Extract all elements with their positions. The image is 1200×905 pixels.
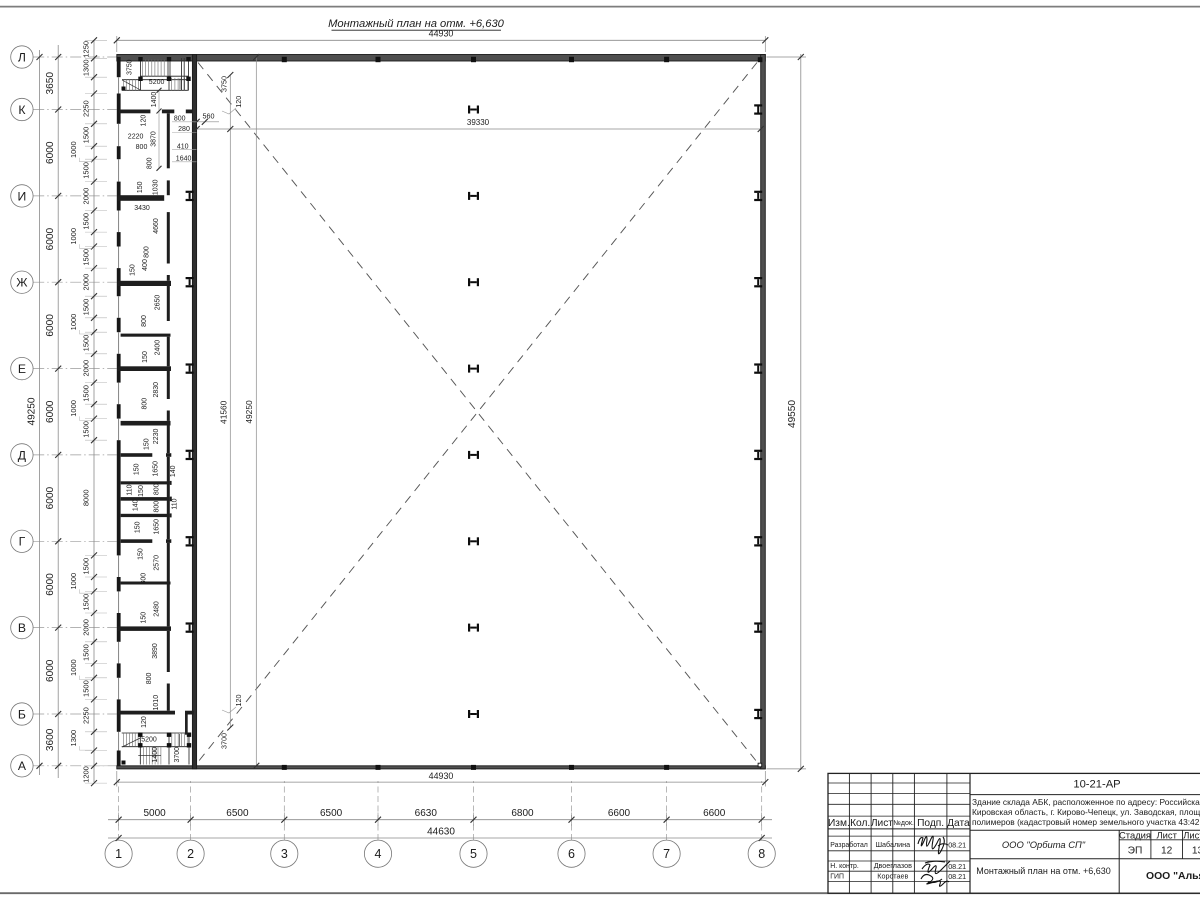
svg-text:3700: 3700	[174, 747, 181, 763]
svg-text:140: 140	[133, 499, 140, 511]
svg-text:6000: 6000	[45, 659, 56, 682]
svg-text:Подп.: Подп.	[917, 818, 944, 829]
svg-text:800: 800	[147, 157, 154, 169]
svg-text:110: 110	[172, 498, 179, 509]
svg-text:150: 150	[134, 521, 141, 533]
svg-text:6000: 6000	[45, 400, 56, 423]
svg-text:4660: 4660	[153, 218, 160, 234]
svg-text:44630: 44630	[427, 827, 455, 838]
svg-text:1000: 1000	[69, 573, 78, 590]
svg-text:1500: 1500	[82, 249, 91, 266]
svg-text:1500: 1500	[82, 299, 91, 316]
svg-text:800: 800	[153, 501, 160, 513]
svg-text:560: 560	[203, 112, 215, 121]
svg-text:6000: 6000	[45, 573, 56, 596]
svg-text:13: 13	[1192, 846, 1200, 857]
svg-text:1650: 1650	[153, 461, 160, 477]
svg-text:400: 400	[142, 259, 149, 271]
svg-text:Лист: Лист	[1157, 829, 1178, 840]
svg-text:3890: 3890	[152, 643, 159, 659]
svg-text:Д: Д	[18, 448, 27, 462]
svg-text:6500: 6500	[320, 808, 343, 819]
svg-text:1300: 1300	[69, 730, 78, 747]
svg-text:2250: 2250	[82, 707, 91, 724]
svg-text:3870: 3870	[151, 131, 158, 147]
svg-text:2000: 2000	[82, 188, 91, 205]
svg-text:1500: 1500	[82, 385, 91, 402]
svg-text:Листов: Листов	[1183, 829, 1200, 840]
svg-text:Изм.: Изм.	[828, 818, 850, 829]
svg-text:6800: 6800	[511, 808, 534, 819]
svg-text:3600: 3600	[45, 728, 56, 751]
svg-text:Ж: Ж	[16, 276, 28, 290]
svg-text:150: 150	[130, 264, 137, 276]
svg-text:2000: 2000	[82, 274, 91, 291]
svg-text:800: 800	[141, 315, 148, 327]
svg-text:8000: 8000	[82, 489, 91, 506]
svg-text:49250: 49250	[244, 400, 254, 424]
svg-text:1500: 1500	[82, 162, 91, 179]
svg-text:3430: 3430	[134, 205, 150, 212]
svg-text:Монтажный план на отм. +6,630: Монтажный план на отм. +6,630	[328, 18, 505, 30]
svg-text:44930: 44930	[429, 771, 454, 781]
svg-text:120: 120	[141, 716, 148, 728]
svg-text:Разработал: Разработал	[830, 841, 868, 849]
svg-text:800: 800	[153, 483, 160, 495]
svg-text:ГИП: ГИП	[830, 873, 844, 880]
svg-text:ООО "Орбита СП": ООО "Орбита СП"	[1002, 839, 1086, 850]
svg-text:Кол.: Кол.	[850, 818, 870, 829]
svg-text:Л: Л	[18, 50, 26, 64]
svg-text:49550: 49550	[787, 400, 798, 428]
svg-text:3: 3	[281, 847, 288, 861]
svg-text:Шабалина: Шабалина	[875, 840, 910, 849]
svg-text:1500: 1500	[82, 644, 91, 661]
svg-text:1500: 1500	[82, 213, 91, 230]
svg-text:800: 800	[141, 398, 148, 410]
svg-text:800: 800	[174, 115, 186, 122]
svg-text:6: 6	[568, 847, 575, 861]
svg-text:800: 800	[144, 246, 151, 258]
svg-text:5200: 5200	[149, 79, 165, 86]
svg-text:120: 120	[234, 96, 243, 108]
svg-text:10-21-АР: 10-21-АР	[1073, 779, 1120, 791]
svg-text:800: 800	[146, 672, 153, 684]
svg-text:1000: 1000	[69, 659, 78, 676]
svg-text:№док.: №док.	[893, 820, 914, 827]
svg-text:1000: 1000	[69, 314, 78, 331]
svg-text:3750: 3750	[220, 76, 229, 92]
svg-text:1500: 1500	[82, 594, 91, 611]
svg-text:1400: 1400	[151, 92, 158, 108]
svg-text:5000: 5000	[143, 808, 166, 819]
svg-text:Кировская область, г. Кирово-Ч: Кировская область, г. Кирово-Чепецк, ул.…	[972, 807, 1200, 817]
svg-text:Е: Е	[18, 362, 26, 376]
svg-text:4: 4	[375, 847, 382, 861]
svg-text:1200: 1200	[82, 766, 91, 783]
svg-text:800: 800	[141, 573, 148, 585]
svg-text:К: К	[18, 103, 26, 117]
svg-text:1010: 1010	[153, 695, 160, 711]
svg-text:6000: 6000	[45, 227, 56, 250]
svg-text:49250: 49250	[26, 397, 37, 425]
svg-text:6000: 6000	[45, 141, 56, 164]
svg-text:Б: Б	[18, 707, 26, 721]
svg-text:2570: 2570	[154, 555, 161, 571]
svg-text:150: 150	[133, 463, 140, 475]
svg-text:1500: 1500	[82, 421, 91, 438]
svg-text:120: 120	[141, 115, 148, 127]
svg-text:Монтажный план на отм. +6,630: Монтажный план на отм. +6,630	[976, 866, 1111, 876]
svg-text:150: 150	[141, 612, 148, 624]
svg-text:08.21: 08.21	[948, 872, 966, 881]
svg-text:1500: 1500	[82, 680, 91, 697]
svg-text:1400: 1400	[152, 747, 159, 763]
svg-text:280: 280	[178, 126, 190, 133]
svg-text:ООО "Альянс-Энерго": ООО "Альянс-Энерго"	[1146, 871, 1200, 882]
svg-text:Дата: Дата	[947, 818, 970, 829]
svg-text:2220: 2220	[128, 134, 144, 141]
svg-text:6000: 6000	[45, 314, 56, 337]
svg-text:8: 8	[758, 847, 765, 861]
svg-text:150: 150	[138, 548, 145, 560]
svg-text:5200: 5200	[141, 737, 157, 744]
svg-text:2480: 2480	[154, 601, 161, 617]
svg-text:Здание склада АБК, расположенн: Здание склада АБК, расположенное по адре…	[972, 797, 1200, 807]
svg-text:3750: 3750	[126, 59, 133, 75]
svg-text:полимеров (кадастровый номер з: полимеров (кадастровый номер земельного …	[972, 817, 1200, 827]
svg-text:1000: 1000	[69, 228, 78, 245]
svg-text:6000: 6000	[45, 486, 56, 509]
svg-text:Двоеглазов: Двоеглазов	[874, 861, 912, 870]
svg-text:1500: 1500	[82, 558, 91, 575]
svg-text:6600: 6600	[608, 808, 631, 819]
svg-text:5: 5	[470, 847, 477, 861]
svg-text:7: 7	[663, 847, 670, 861]
svg-text:2230: 2230	[153, 429, 160, 445]
svg-text:410: 410	[177, 143, 189, 150]
svg-text:Стадия: Стадия	[1119, 829, 1151, 840]
svg-text:120: 120	[234, 695, 243, 707]
svg-text:А: А	[18, 759, 27, 773]
svg-text:Н. контр.: Н. контр.	[830, 863, 859, 870]
svg-text:110: 110	[127, 484, 134, 495]
svg-text:1000: 1000	[69, 141, 78, 158]
svg-text:И: И	[18, 189, 27, 203]
svg-text:12: 12	[1161, 846, 1173, 857]
svg-text:150: 150	[138, 485, 145, 497]
svg-text:6500: 6500	[226, 808, 249, 819]
svg-text:Лист: Лист	[871, 818, 893, 829]
svg-text:44930: 44930	[429, 29, 454, 39]
svg-text:1: 1	[115, 847, 122, 861]
svg-text:1640: 1640	[176, 156, 192, 163]
svg-text:Коротаев: Коротаев	[877, 871, 908, 880]
svg-text:150: 150	[137, 181, 144, 193]
svg-text:800: 800	[136, 144, 148, 151]
svg-text:150: 150	[144, 438, 151, 450]
svg-text:2000: 2000	[82, 360, 91, 377]
svg-text:2830: 2830	[153, 382, 160, 398]
svg-text:41560: 41560	[218, 400, 228, 424]
svg-text:39330: 39330	[467, 118, 490, 127]
svg-text:3650: 3650	[45, 72, 56, 95]
svg-text:1030: 1030	[153, 179, 160, 195]
svg-text:ЭП: ЭП	[1128, 846, 1143, 857]
svg-text:6600: 6600	[703, 808, 726, 819]
svg-text:1650: 1650	[153, 519, 160, 535]
svg-text:140: 140	[170, 465, 177, 477]
svg-text:08.21: 08.21	[948, 862, 966, 871]
svg-text:В: В	[18, 621, 26, 635]
svg-text:1500: 1500	[82, 335, 91, 352]
svg-text:2250: 2250	[82, 100, 91, 117]
svg-text:2400: 2400	[155, 340, 162, 356]
svg-text:1300: 1300	[82, 59, 91, 76]
svg-text:2: 2	[187, 847, 194, 861]
svg-text:2000: 2000	[82, 619, 91, 636]
svg-text:08.21: 08.21	[948, 841, 966, 850]
svg-text:3700: 3700	[220, 733, 229, 749]
svg-text:1500: 1500	[82, 127, 91, 144]
svg-text:6630: 6630	[415, 808, 438, 819]
svg-text:1000: 1000	[69, 400, 78, 417]
svg-text:1250: 1250	[82, 41, 91, 58]
svg-text:2650: 2650	[155, 295, 162, 311]
svg-text:Г: Г	[19, 535, 26, 549]
svg-text:150: 150	[142, 351, 149, 363]
